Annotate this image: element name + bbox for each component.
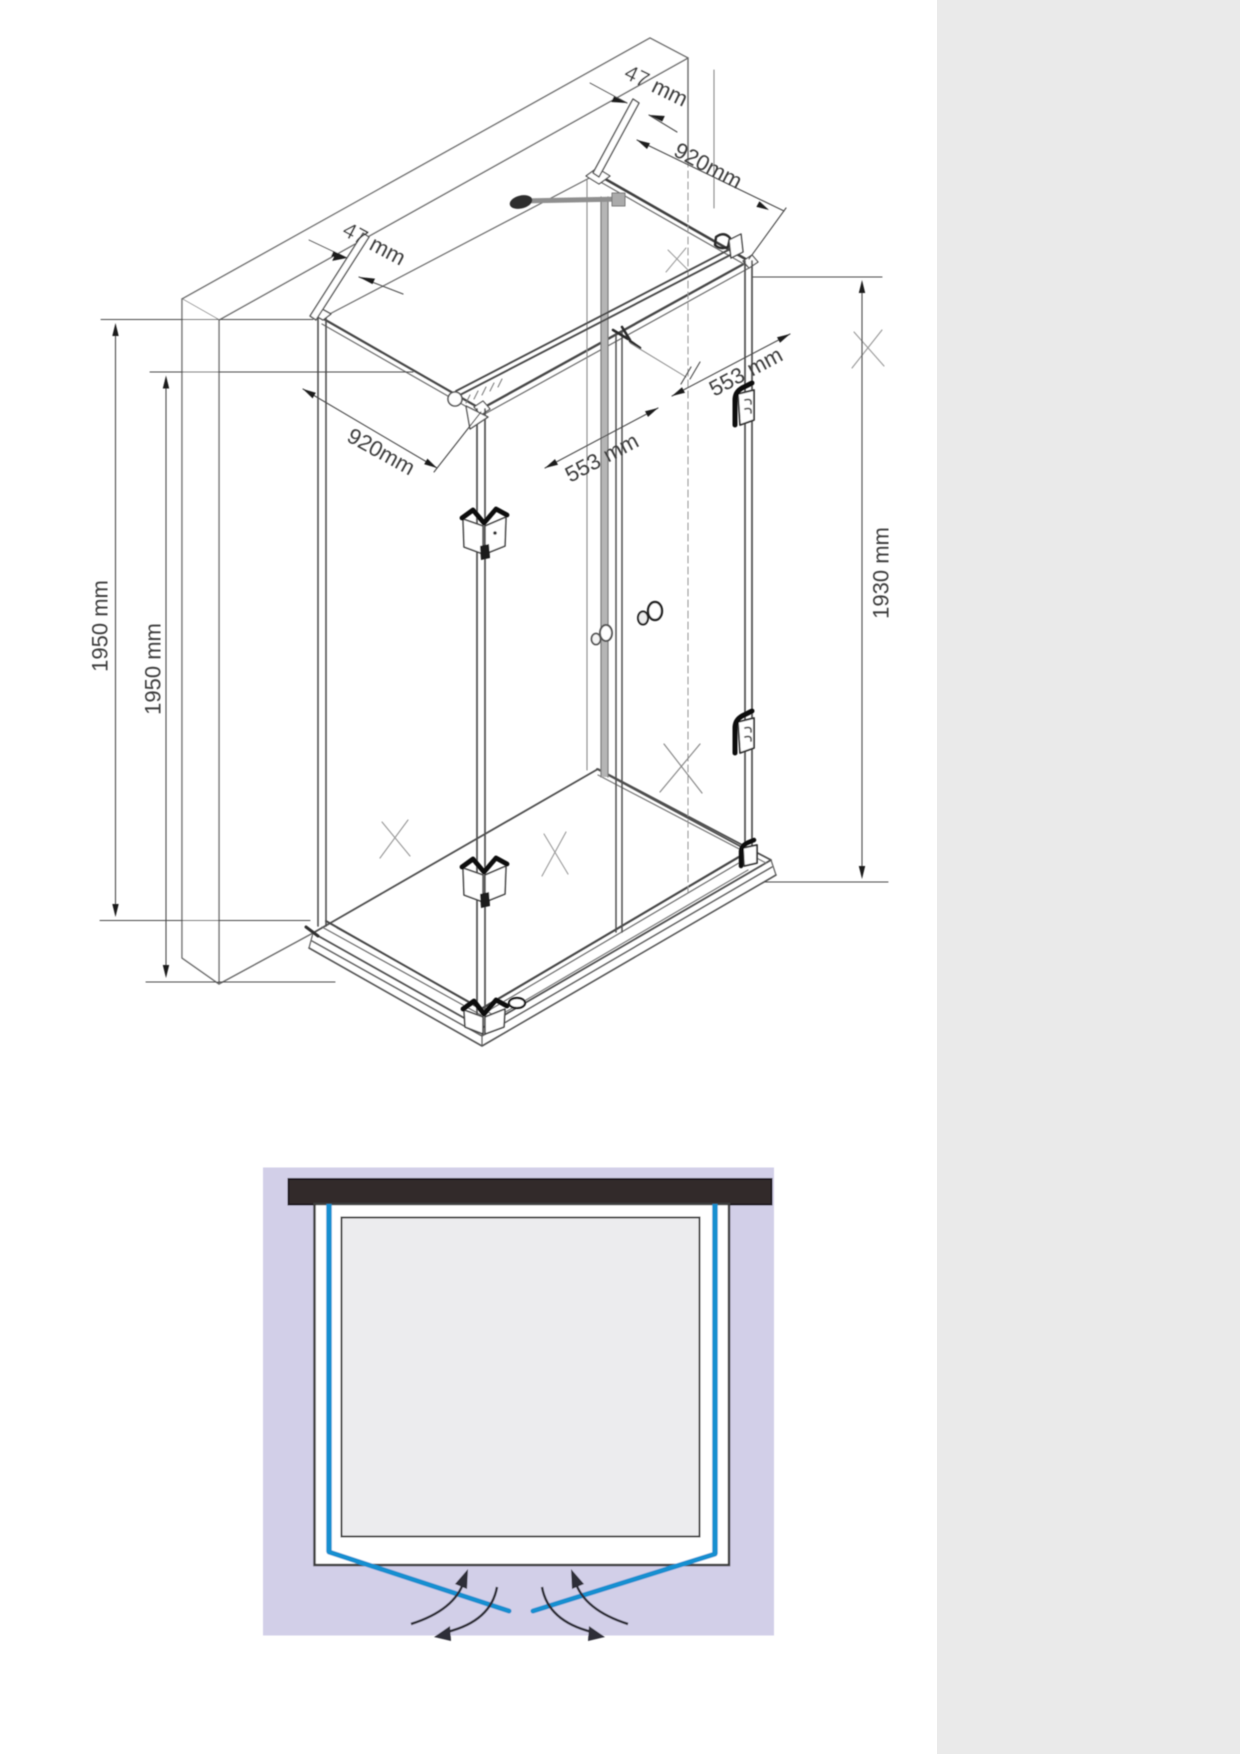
svg-text:1930 mm: 1930 mm bbox=[869, 527, 894, 619]
svg-text:1950 mm: 1950 mm bbox=[141, 623, 166, 715]
svg-text:1950 mm: 1950 mm bbox=[88, 580, 113, 672]
